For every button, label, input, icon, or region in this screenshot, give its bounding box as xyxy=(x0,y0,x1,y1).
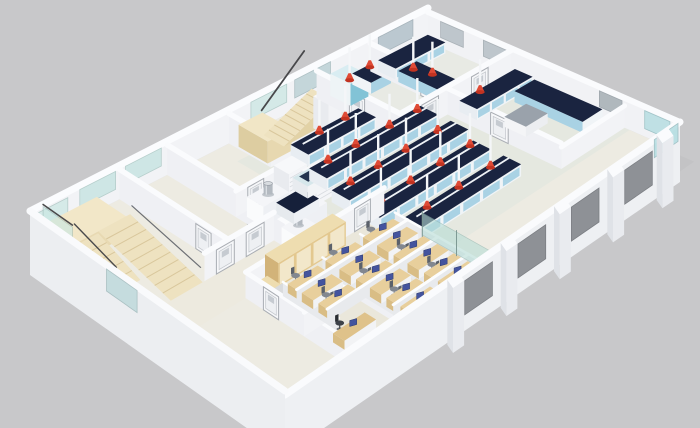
exhaust-chimney xyxy=(262,182,274,197)
wall-pilaster xyxy=(501,235,518,316)
wall-pilaster xyxy=(657,128,674,209)
wall-pilaster xyxy=(607,162,624,243)
floorplan-3d-render xyxy=(0,0,700,428)
wall-pilaster xyxy=(447,272,464,353)
wall-pilaster xyxy=(554,198,571,279)
floorplan-svg xyxy=(0,0,700,428)
